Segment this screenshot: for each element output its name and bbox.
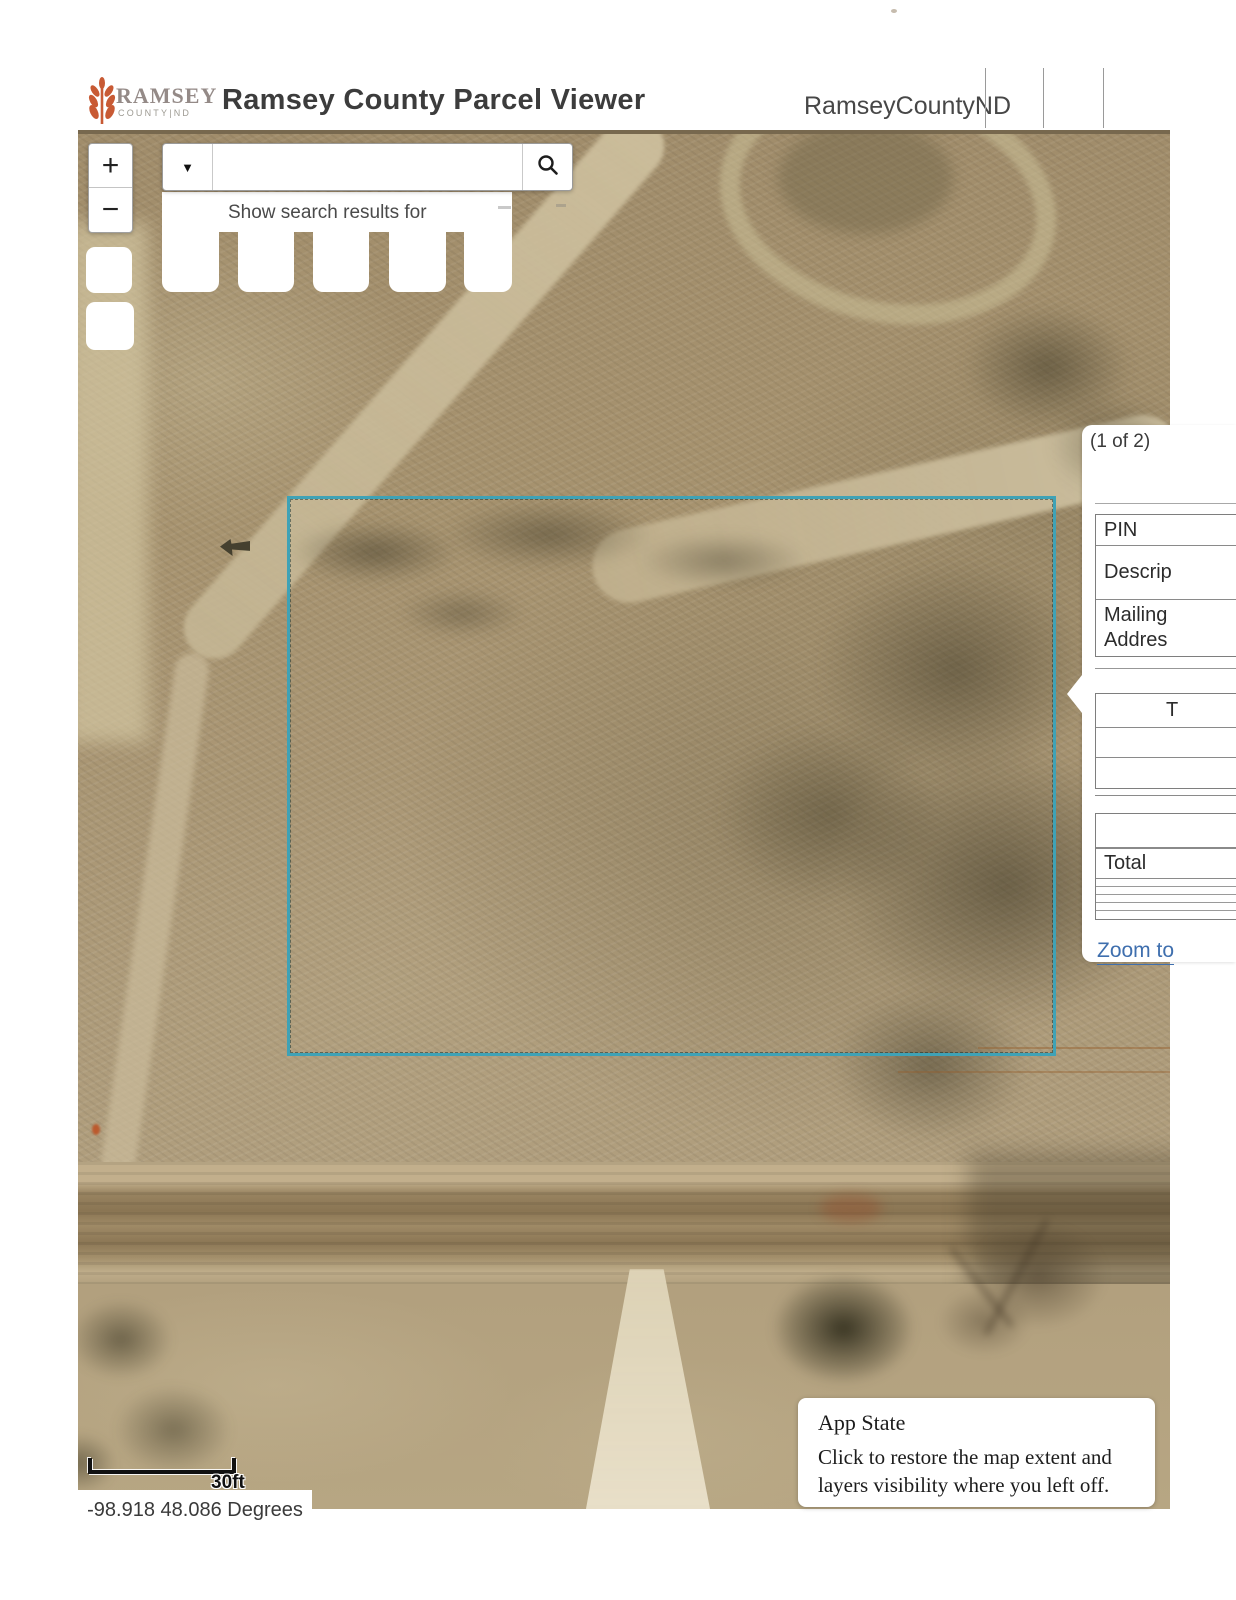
redacted-suggestion-block (238, 232, 294, 292)
cursor-coordinates: -98.918 48.086 Degrees (78, 1490, 312, 1530)
zoom-in-button[interactable]: + (89, 144, 132, 188)
popup-pager[interactable]: (1 of 2) (1090, 431, 1150, 453)
header-divider (1043, 68, 1044, 128)
redacted-text-ghost (498, 206, 511, 209)
map-zoom-controls: + − (88, 143, 133, 233)
toast-title: App State (818, 1410, 905, 1436)
popup-callout-arrow (1067, 675, 1082, 713)
evergreen-tree (766, 1266, 921, 1391)
table-row (1096, 911, 1236, 919)
orange-speck (92, 1124, 100, 1135)
table-row-pin: PIN (1096, 515, 1236, 546)
zoom-out-button[interactable]: − (89, 188, 132, 232)
table-row (1096, 887, 1236, 895)
zoom-to-link[interactable]: Zoom to (1097, 939, 1174, 965)
table-row (1096, 903, 1236, 911)
parcel-boundary-hairline (898, 1071, 1170, 1073)
reddish-patch (820, 1194, 882, 1222)
app-state-toast[interactable]: App State Click to restore the map exten… (798, 1398, 1155, 1507)
search-bar: ▼ (162, 143, 573, 191)
mailing-line1: Mailing (1104, 604, 1167, 626)
county-logo: RAMSEY COUNTY|ND (88, 77, 218, 127)
redacted-suggestion-block (313, 232, 369, 292)
parcel-viewer-page: RAMSEY COUNTY|ND Ramsey County Parcel Vi… (0, 0, 1236, 1600)
redacted-map-button[interactable] (86, 302, 134, 350)
redacted-text-ghost (556, 204, 566, 207)
toast-message: Click to restore the map extent and laye… (818, 1444, 1138, 1499)
tax-header-label: T (1166, 699, 1178, 722)
table-row (1096, 879, 1236, 887)
tax-table-header: T (1096, 694, 1236, 728)
table-row-description: Descrip (1096, 546, 1236, 600)
header-divider (985, 68, 986, 128)
parcel-info-popup: (1 of 2) PIN Descrip Mailing Addres T To… (1082, 425, 1236, 962)
scan-artifact-dot (891, 9, 897, 13)
selected-parcel-highlight[interactable] (287, 496, 1056, 1056)
table-row-total: Total (1096, 848, 1236, 879)
table-row (1096, 814, 1236, 848)
attribute-table: PIN Descrip Mailing Addres (1095, 514, 1236, 657)
account-name[interactable]: RamseyCountyND (804, 92, 1011, 121)
redacted-suggestion-block (464, 232, 512, 292)
bare-tree (920, 1192, 1135, 1377)
mailing-line2: Addres (1104, 629, 1167, 651)
table-row-mailing: Mailing Addres (1096, 600, 1236, 656)
table-row (1096, 728, 1236, 758)
search-icon (536, 153, 560, 182)
search-input[interactable] (213, 144, 522, 190)
header-divider (1103, 68, 1104, 128)
table-row (1096, 758, 1236, 788)
aerial-basemap[interactable] (78, 130, 1170, 1509)
search-source-dropdown[interactable]: ▼ (163, 144, 213, 190)
redacted-map-button[interactable] (86, 247, 132, 293)
search-suggestion[interactable]: Show search results for (162, 192, 512, 232)
divider (1095, 503, 1236, 504)
suggestion-label: Show search results for (228, 202, 427, 224)
tax-table: T (1095, 693, 1236, 789)
pale-ground (78, 222, 148, 742)
divider (1095, 795, 1236, 796)
wheat-icon (88, 77, 116, 130)
divider (1095, 668, 1236, 669)
page-title: Ramsey County Parcel Viewer (222, 84, 645, 117)
chevron-down-icon: ▼ (181, 160, 194, 175)
logo-line2: COUNTY|ND (118, 108, 191, 118)
logo-line1: RAMSEY (116, 83, 217, 109)
totals-table: Total (1095, 813, 1236, 920)
redacted-suggestion-block (389, 232, 446, 292)
redacted-suggestion-block (162, 232, 219, 292)
table-row (1096, 895, 1236, 903)
search-button[interactable] (522, 144, 572, 190)
